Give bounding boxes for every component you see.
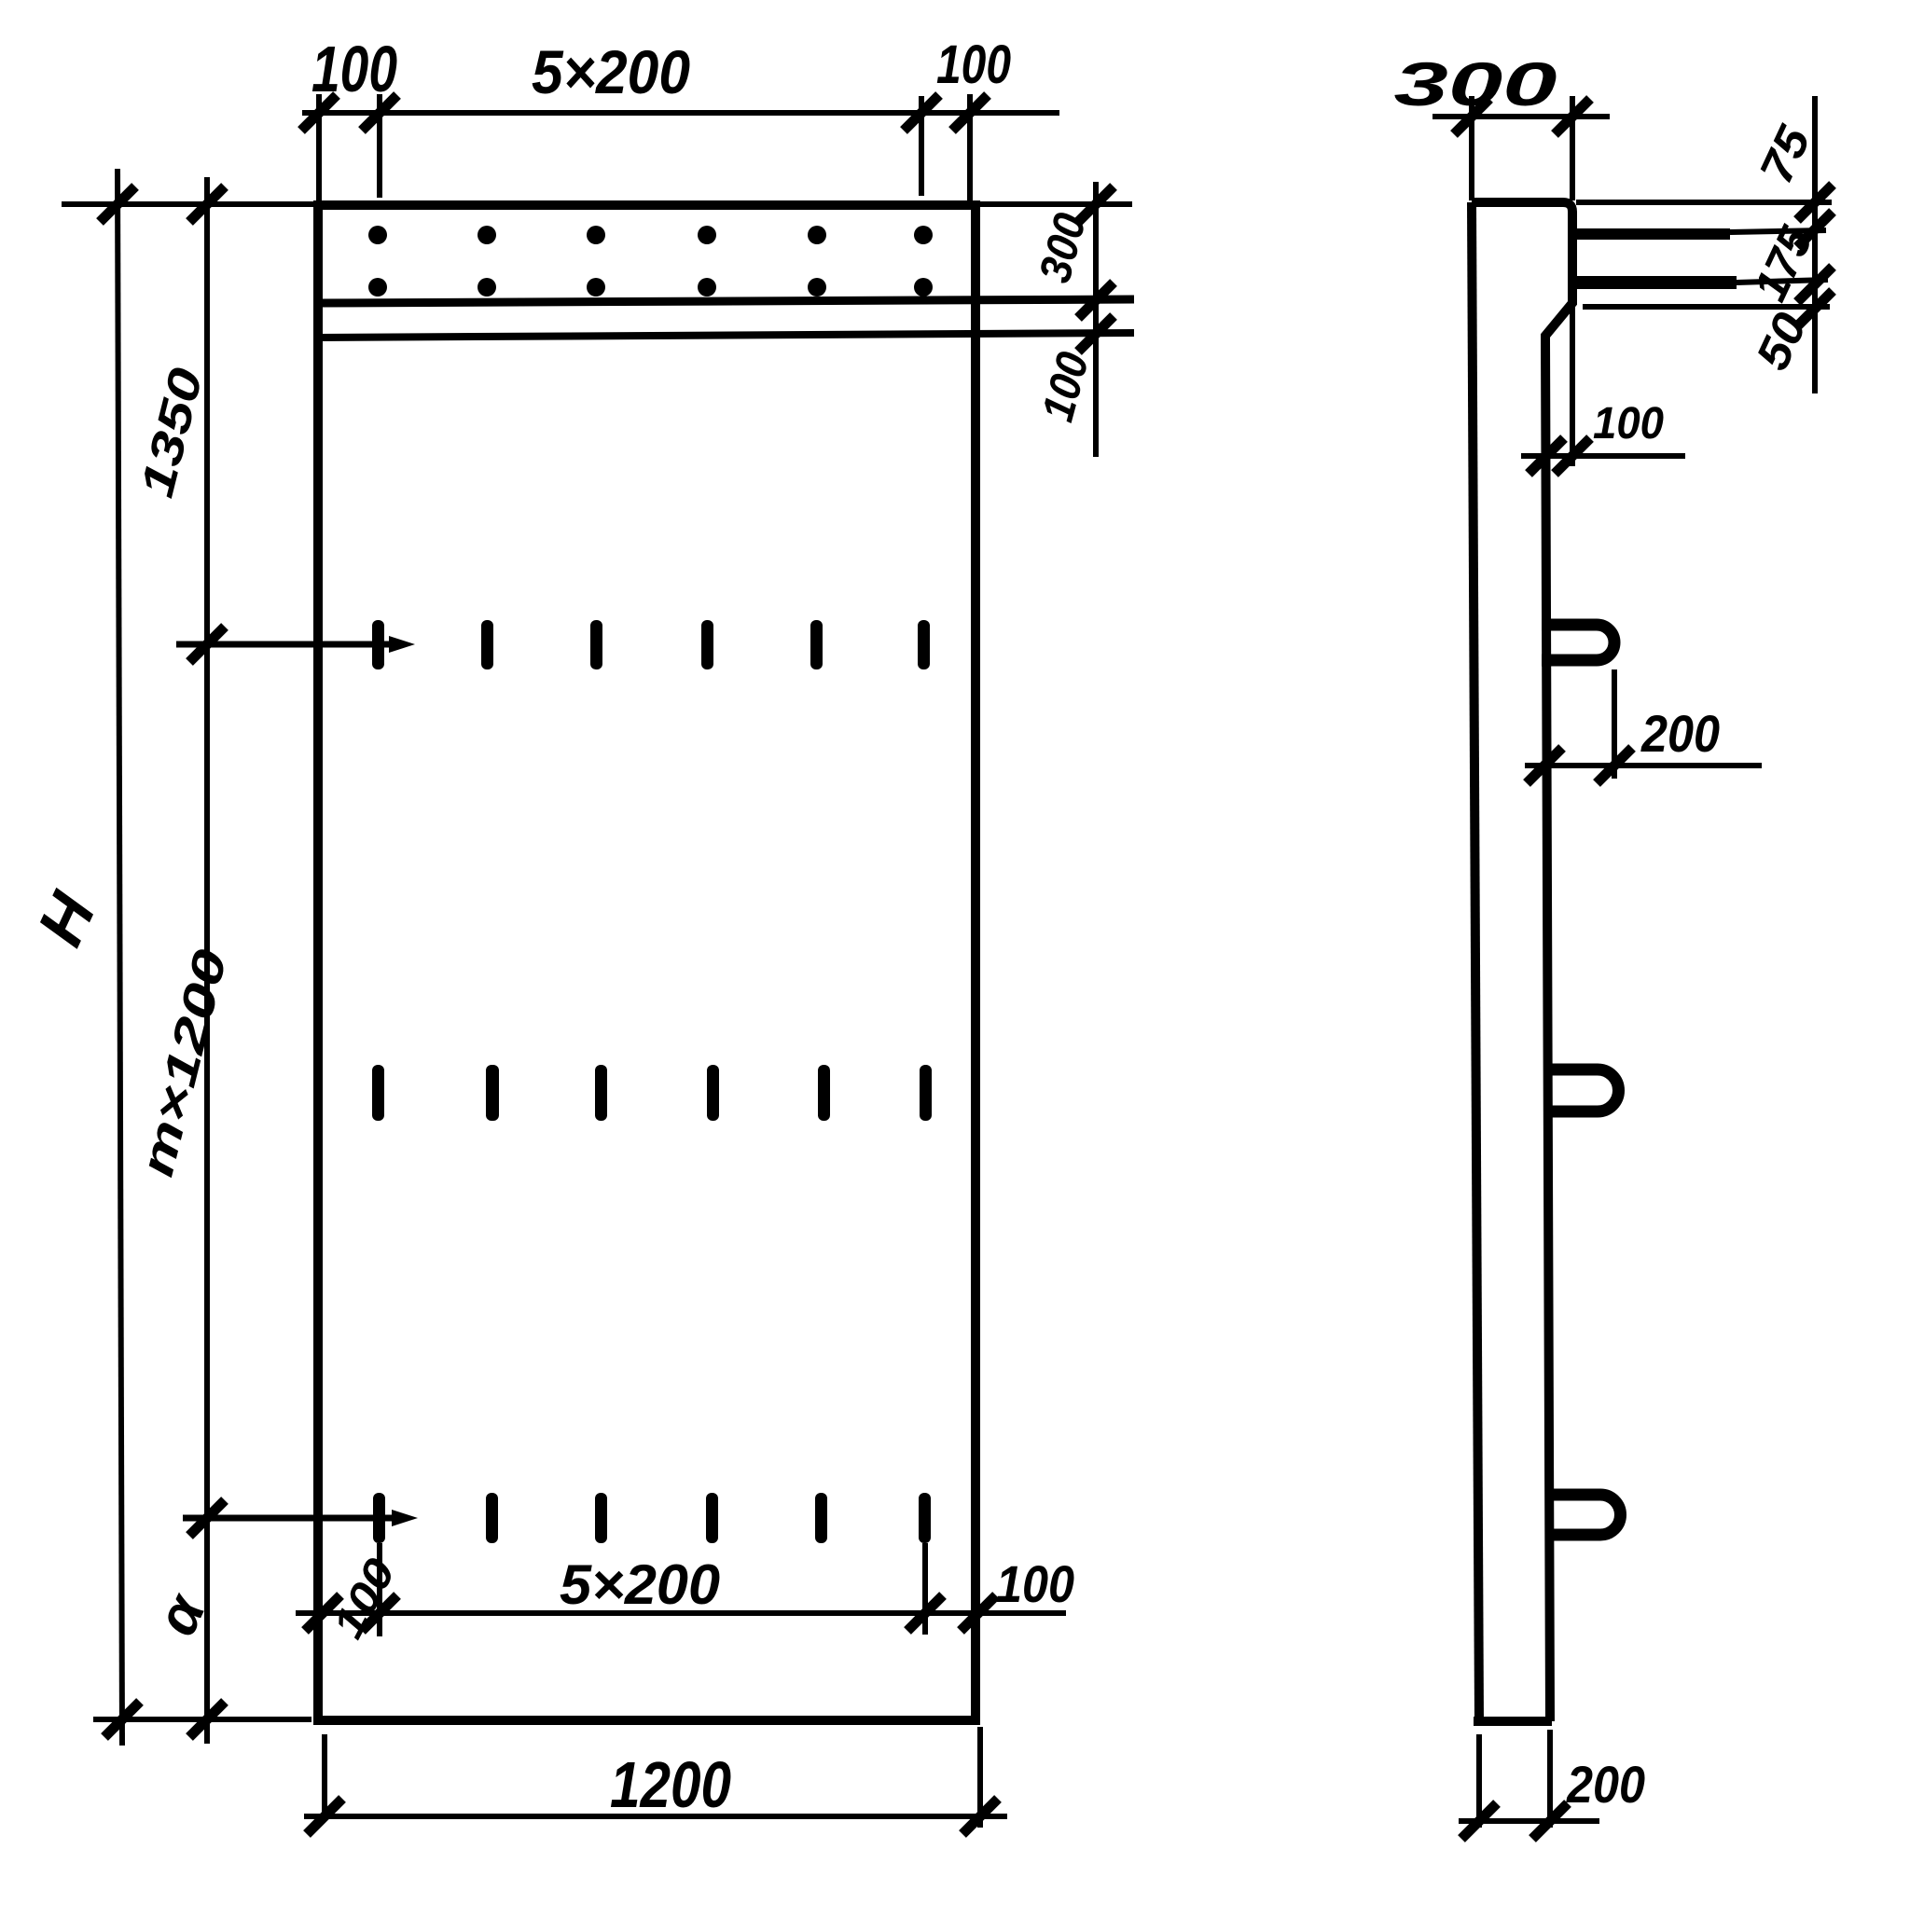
svg-text:100: 100 [996, 1554, 1074, 1613]
svg-text:100: 100 [1593, 399, 1664, 448]
svg-text:5×200: 5×200 [532, 37, 690, 106]
svg-text:200: 200 [1566, 1755, 1645, 1814]
svg-text:100: 100 [936, 34, 1011, 95]
svg-text:100: 100 [311, 33, 397, 105]
svg-text:5×200: 5×200 [560, 1553, 720, 1616]
svg-text:300: 300 [1394, 49, 1557, 118]
svg-text:200: 200 [1640, 704, 1720, 763]
svg-text:1200: 1200 [610, 1748, 731, 1821]
